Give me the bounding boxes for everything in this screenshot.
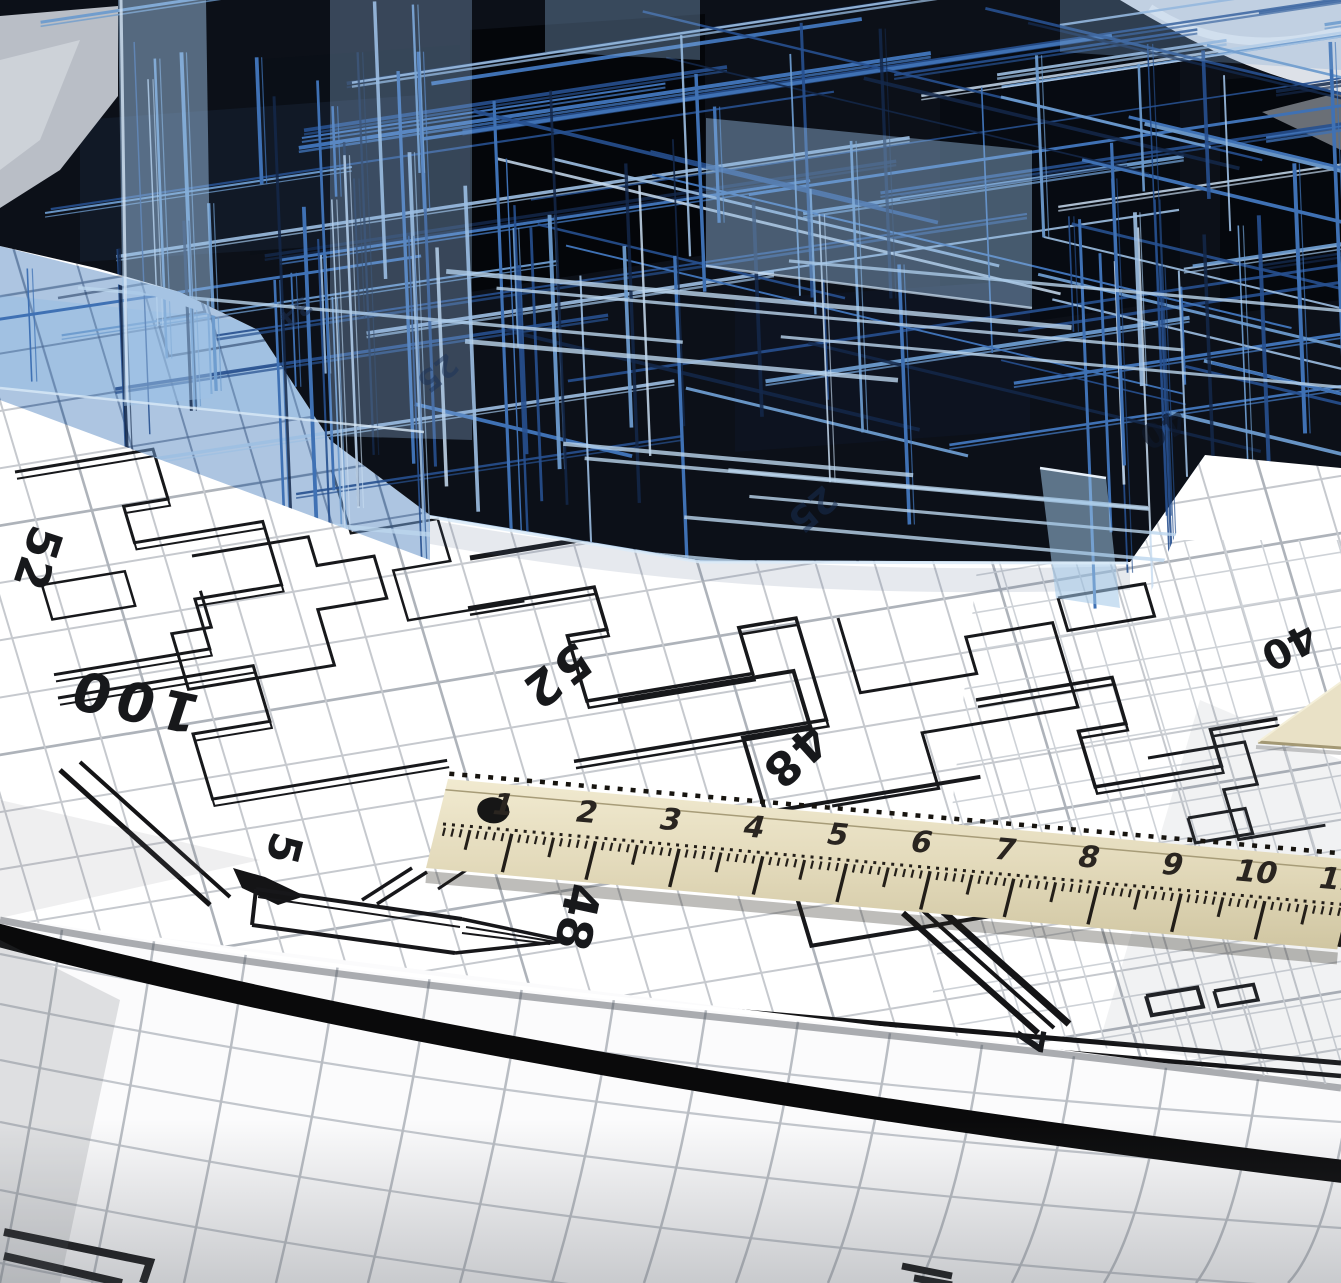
scene-canvas: 1234567891011 (0, 0, 1341, 1283)
blueprint-architecture-photo: 1234567891011 100 52 52 48 40 5 48 7 34 … (0, 0, 1341, 1283)
